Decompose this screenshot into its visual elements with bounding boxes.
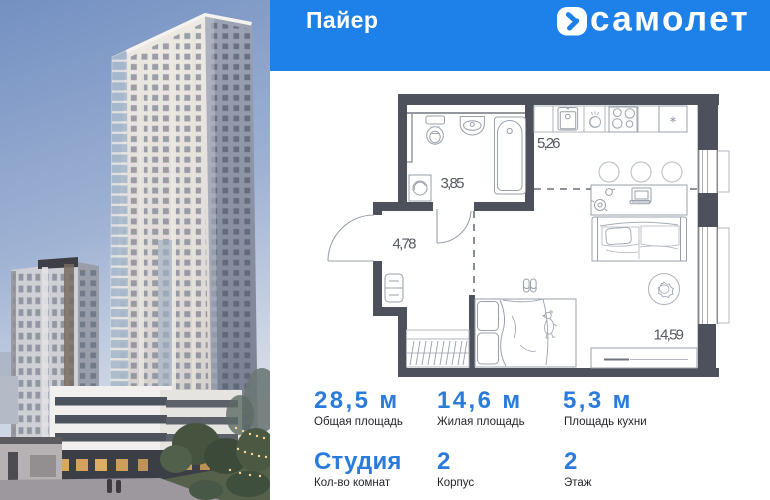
svg-text:5,26: 5,26 (537, 135, 561, 152)
svg-text:3,85: 3,85 (441, 175, 465, 192)
svg-text:4,78: 4,78 (393, 236, 417, 253)
svg-text:14,59: 14,59 (654, 327, 685, 344)
svg-text:самолет: самолет (590, 0, 750, 39)
